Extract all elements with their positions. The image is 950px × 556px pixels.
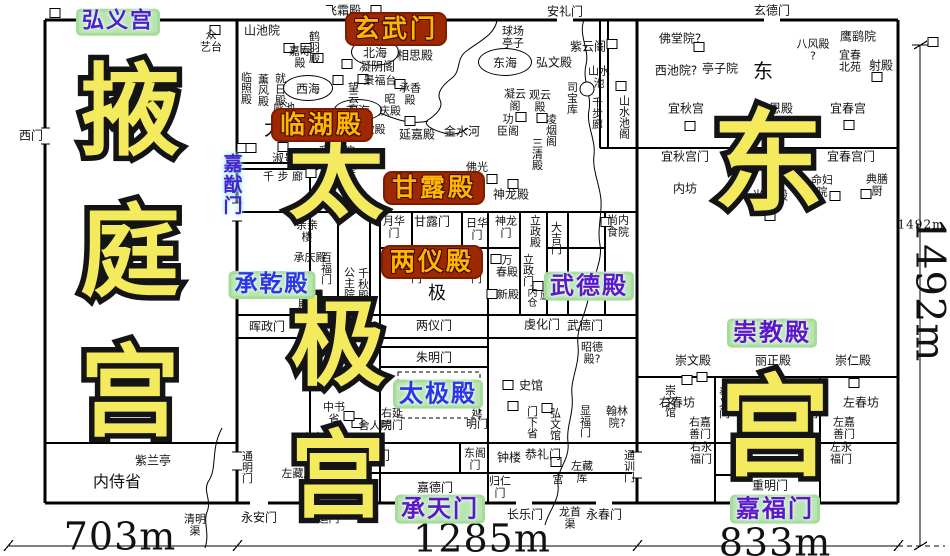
- map-label: 晖政门: [249, 320, 285, 333]
- map-label: 紫云阁: [570, 40, 606, 53]
- map-label: 宜春 北苑: [839, 50, 861, 75]
- big-palace-title: 宫宫: [290, 430, 385, 525]
- map-label: 清明 渠: [184, 514, 206, 539]
- dimension-label: 703m: [64, 516, 177, 556]
- map-label: 延嘉殿: [399, 128, 435, 141]
- big-palace-title: 庭庭: [80, 203, 180, 303]
- map-label: 内仓: [525, 287, 535, 307]
- map-label: 左永 福门: [830, 442, 852, 467]
- building-marker: [246, 143, 257, 153]
- map-label: 西池院?: [655, 64, 697, 77]
- map-label: 鹰鹞院: [840, 30, 876, 43]
- hall-name-highlight: 临湖殿: [271, 108, 373, 142]
- map-label: 薰风殿: [258, 74, 269, 107]
- map-label: 新殿: [497, 289, 519, 301]
- map-label: 宜秋宫门: [661, 150, 709, 163]
- dimension-label: 1285m: [413, 518, 551, 556]
- map-label: 嘉德门: [417, 481, 453, 494]
- big-palace-title: 东东: [713, 108, 823, 218]
- hall-name-highlight: 两仪殿: [381, 245, 483, 279]
- map-label: 通明门: [242, 451, 253, 484]
- big-title-fill: 宫: [720, 364, 830, 492]
- map-label: 八风殿 ?: [797, 39, 830, 64]
- map-label: 月华 门: [383, 216, 405, 241]
- map-label: 佛堂院?: [659, 32, 701, 45]
- map-label: 通训门: [624, 450, 635, 483]
- map-label: 金水河: [444, 125, 480, 138]
- map-label: 安礼门: [547, 5, 583, 18]
- building-marker: [50, 8, 61, 18]
- palace-name-highlight: 武德殿: [544, 272, 634, 301]
- map-label: 翰林 院?: [606, 406, 628, 431]
- map-label: 东阁 门: [464, 448, 486, 473]
- map-label: 东: [753, 60, 773, 82]
- map-label: 射殿: [869, 59, 893, 72]
- map-label: 龙首 渠: [559, 507, 581, 532]
- big-palace-title: 宫宫: [80, 343, 180, 443]
- map-label: 史馆: [519, 379, 543, 392]
- big-palace-title: 太太: [288, 131, 383, 226]
- lake: 西海: [283, 75, 333, 101]
- map-label: 昭 庆殿: [379, 94, 401, 119]
- building-marker: [333, 75, 344, 85]
- map-label: 三清殿: [532, 138, 543, 171]
- map-label: 山水 池: [588, 66, 610, 91]
- map-label: 右嘉 善门: [689, 417, 711, 442]
- palace-name-highlight: 崇教殿: [727, 319, 817, 348]
- map-label: 永安门: [241, 511, 277, 524]
- map-label: 景福台: [364, 75, 397, 87]
- building-marker: [928, 37, 939, 47]
- map-label: 左春坊: [843, 396, 879, 409]
- building-marker: [616, 81, 627, 91]
- map-label: 极: [428, 284, 446, 304]
- map-label: 两仪门: [416, 319, 452, 332]
- map-label: 尚内 食院: [607, 215, 629, 240]
- map-label: 恭礼门: [525, 448, 561, 461]
- map-label: 日华 门: [466, 218, 488, 243]
- palace-map: 掖掖庭庭宫宫太太极极宫宫东东宫宫飞霜殿安礼门玄德门弘义宫玄武门西门众 艺台山池院…: [0, 0, 950, 556]
- map-label: 立政殿: [530, 215, 541, 248]
- palace-name-highlight: 承天门: [395, 495, 485, 524]
- hall-name-highlight: 玄武门: [345, 12, 447, 46]
- building-marker: [342, 59, 353, 69]
- gate-name-highlight: 嘉猷门: [222, 154, 241, 217]
- big-title-fill: 极: [290, 290, 385, 400]
- palace-name-highlight: 太极殿: [393, 380, 483, 409]
- map-label: 右春坊: [659, 396, 695, 409]
- map-label: 凌烟阁: [546, 114, 557, 147]
- map-label: 神龙殿: [493, 188, 529, 201]
- building-marker: [849, 378, 860, 388]
- map-label: 左嘉 善门: [833, 417, 855, 442]
- map-label: 球场 亭子: [502, 26, 524, 51]
- map-label: 右永 福门: [690, 442, 712, 467]
- map-label: 昭德 殿?: [581, 342, 603, 367]
- big-palace-title: 宫宫: [720, 373, 830, 483]
- map-label: 崇文殿: [675, 354, 711, 367]
- map-label: 神龙 门: [495, 216, 517, 241]
- lake: 东海: [478, 48, 532, 76]
- building-marker: [685, 121, 696, 131]
- map-label: 延 明门: [466, 407, 488, 432]
- building-marker: [487, 174, 498, 184]
- map-label: 甘露门: [414, 215, 450, 228]
- map-label: 凝阴阁: [359, 60, 395, 73]
- palace-name-highlight: 嘉福门: [730, 495, 820, 524]
- dimension-label: 1492m: [907, 218, 950, 363]
- map-label: 西门: [19, 129, 43, 142]
- map-label: 功 臣阁: [497, 114, 519, 139]
- map-label: 崇仁殿: [835, 354, 871, 367]
- hall-name-highlight: 甘露殿: [383, 171, 485, 205]
- building-marker: [487, 289, 498, 299]
- map-label: 百福门: [321, 252, 332, 285]
- big-title-fill: 掖: [80, 53, 180, 170]
- big-title-fill: 宫: [290, 422, 385, 532]
- map-label: 弘文馆: [550, 408, 561, 441]
- map-label: 亭子院: [702, 62, 738, 75]
- building-marker: [508, 401, 519, 411]
- building-marker: [607, 39, 618, 49]
- map-label: 万 春殿: [496, 255, 518, 280]
- map-label: 承香 殿: [399, 83, 421, 108]
- building-marker: [844, 120, 855, 130]
- palace-name-highlight: 承乾殿: [229, 271, 316, 299]
- map-label: 众 艺台: [200, 30, 222, 55]
- building-marker: [682, 375, 693, 385]
- map-label: 观云 殿: [529, 90, 551, 115]
- map-label: 内侍省: [93, 473, 141, 491]
- map-label: 内坊: [673, 182, 697, 195]
- map-label: 永春门: [586, 508, 622, 521]
- map-label: 立政门: [523, 254, 534, 287]
- big-palace-title: 极极: [290, 298, 385, 393]
- building-marker: [697, 372, 708, 382]
- map-label: 宫: [553, 474, 564, 486]
- big-palace-title: 掖掖: [80, 62, 180, 162]
- building-marker: [344, 411, 355, 421]
- big-title-fill: 庭: [80, 194, 180, 311]
- big-title-fill: 东: [713, 99, 823, 227]
- map-label: 凝云 阁: [504, 89, 526, 114]
- map-label: 朱明门: [416, 351, 452, 364]
- map-label: 宜春宫门: [827, 150, 875, 163]
- map-label: 左藏 库: [571, 461, 593, 486]
- map-label: 临照殿: [241, 72, 252, 105]
- map-label: 显福门: [580, 405, 591, 438]
- map-label: 武德门: [567, 319, 603, 332]
- map-label: 司宝库: [567, 82, 578, 115]
- building-marker: [872, 72, 883, 82]
- dimension-label: 833m: [719, 522, 832, 556]
- building-marker: [405, 116, 416, 126]
- big-title-fill: 宫: [80, 334, 180, 451]
- map-label: 千步廊: [592, 97, 603, 130]
- palace-name-highlight: 弘义宫: [76, 9, 160, 36]
- building-marker: [503, 380, 514, 390]
- map-label: 鹤羽殿: [309, 31, 320, 64]
- map-label: 山池院: [244, 24, 280, 37]
- map-label: 弘文殿: [536, 56, 572, 69]
- map-label: 紫兰亭: [135, 454, 171, 467]
- map-label: 大吉门: [551, 222, 562, 255]
- map-label: 门下省: [527, 406, 538, 439]
- map-label: 玄德门: [754, 4, 790, 17]
- map-label: 宜秋宫: [668, 102, 704, 115]
- map-label: 宜春宫: [830, 102, 866, 115]
- map-label: 归仁 门: [489, 476, 511, 501]
- map-label: 钟楼: [497, 451, 521, 464]
- map-label: 山水池阁: [619, 95, 630, 139]
- map-label: 相思殿: [397, 49, 433, 62]
- map-label: 典膳 厨: [866, 174, 888, 199]
- map-label: 虔化门: [524, 318, 560, 331]
